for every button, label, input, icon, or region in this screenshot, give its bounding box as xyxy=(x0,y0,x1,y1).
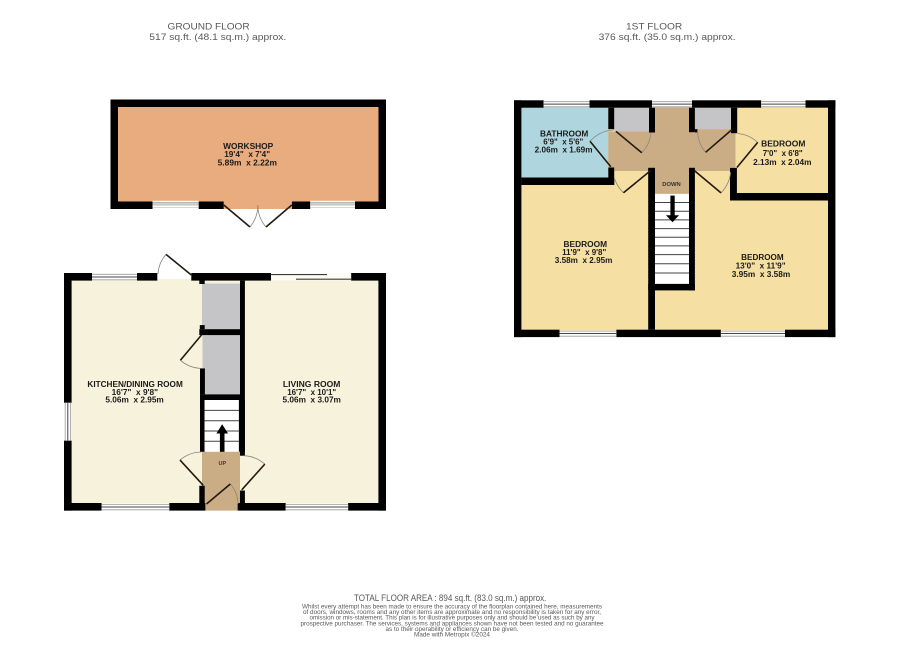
svg-text:Made with Metropix ©2024: Made with Metropix ©2024 xyxy=(414,632,491,639)
svg-text:DOWN: DOWN xyxy=(662,182,681,188)
svg-text:3.95m x 3.58m: 3.95m x 3.58m xyxy=(732,270,791,279)
svg-text:2.06m x 1.69m: 2.06m x 1.69m xyxy=(535,146,593,155)
svg-text:13'0" x 11'9": 13'0" x 11'9" xyxy=(736,261,786,270)
svg-text:5.06m x 3.07m: 5.06m x 3.07m xyxy=(283,396,341,405)
svg-text:BEDROOM: BEDROOM xyxy=(761,140,806,149)
svg-text:5.06m x 2.95m: 5.06m x 2.95m xyxy=(105,396,163,405)
svg-text:517 sq.ft. (48.1 sq.m.) approx: 517 sq.ft. (48.1 sq.m.) approx. xyxy=(149,32,286,43)
svg-text:7'0" x 6'8": 7'0" x 6'8" xyxy=(763,149,803,158)
svg-text:UP: UP xyxy=(218,461,226,467)
svg-text:2.13m x 2.04m: 2.13m x 2.04m xyxy=(753,158,811,167)
svg-text:3.58m x 2.95m: 3.58m x 2.95m xyxy=(555,256,613,265)
svg-text:5.89m x 2.22m: 5.89m x 2.22m xyxy=(218,159,277,168)
svg-text:TOTAL FLOOR AREA : 894 sq.ft.: TOTAL FLOOR AREA : 894 sq.ft. (83.0 sq.m… xyxy=(354,593,546,604)
svg-text:1ST FLOOR: 1ST FLOOR xyxy=(626,21,682,32)
svg-text:376 sq.ft. (35.0 sq.m.) approx: 376 sq.ft. (35.0 sq.m.) approx. xyxy=(599,32,736,43)
